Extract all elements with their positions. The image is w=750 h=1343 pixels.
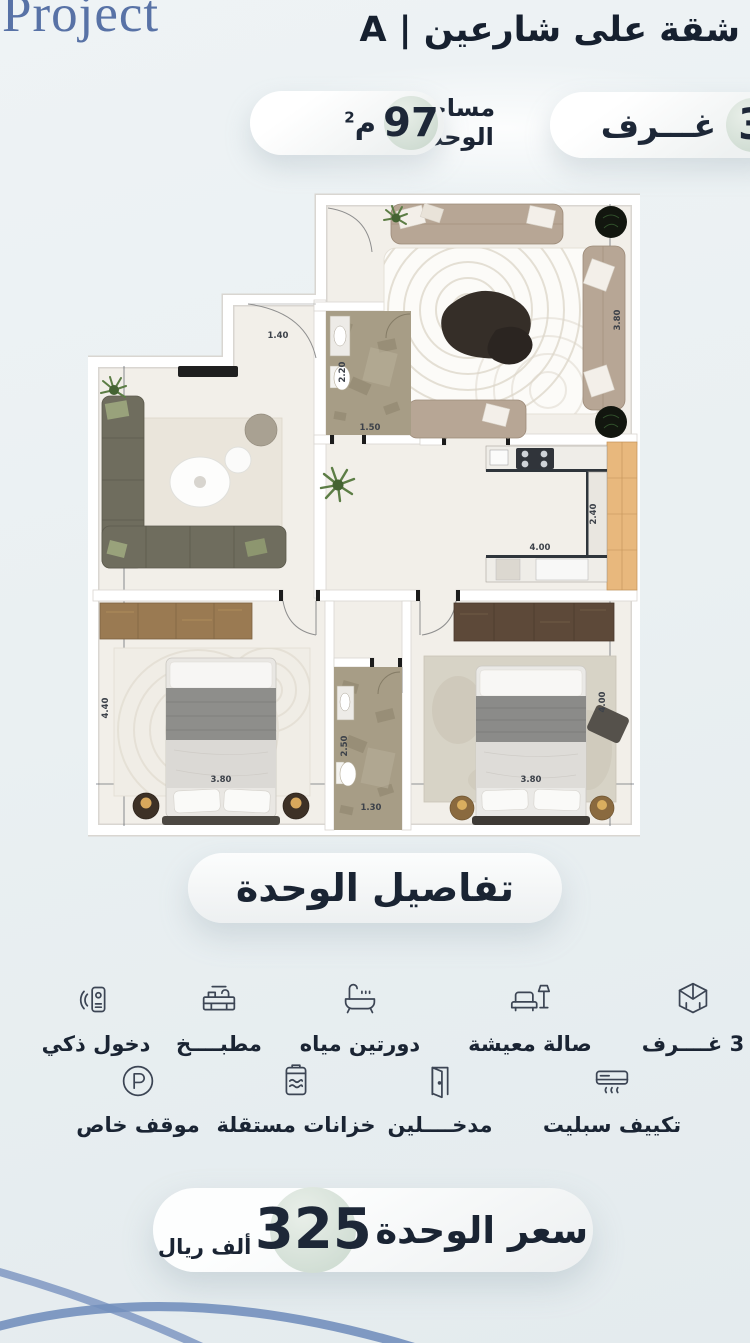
feature-living-hall: صالة معيشة [462, 977, 598, 1056]
svg-text:1.50: 1.50 [360, 423, 381, 433]
price-value: 325 [255, 1202, 372, 1258]
svg-text:4.00: 4.00 [530, 543, 551, 553]
svg-text:3.80: 3.80 [521, 775, 542, 785]
tv-unit [178, 366, 238, 377]
ac-split-icon [589, 1058, 635, 1104]
kitchen-icon [196, 977, 242, 1023]
rooms-count: 3 [738, 104, 750, 147]
price-value-wrap: 325 [267, 1188, 359, 1272]
feature-ac: تكييف سبليت [544, 1058, 680, 1137]
sofa-icon [507, 977, 553, 1023]
smart-lock-icon [73, 977, 119, 1023]
svg-text:2.50: 2.50 [340, 735, 350, 756]
svg-text:2.40: 2.40 [589, 503, 599, 524]
kitchen-sink [490, 450, 508, 465]
svg-text:3.80: 3.80 [613, 309, 623, 330]
area-badge: 97 م2 [250, 91, 444, 155]
flyer-page: Project شقة على شارعين | A 3 غـــرف مساح… [0, 0, 750, 1343]
feature-entrances: مدخــــلين [372, 1058, 508, 1137]
floor-plan: 3.80 2.20 1.50 [88, 190, 640, 840]
rooms-label: غـــرف [601, 106, 716, 145]
svg-text:1.40: 1.40 [268, 331, 289, 341]
bathtub-icon [337, 977, 383, 1023]
feature-tanks: خزانات مستقلة [228, 1058, 364, 1137]
feature-rooms: 3 غــــرف [625, 977, 750, 1056]
bath2-toilet [340, 762, 356, 786]
brand-logo: Project [2, 0, 159, 44]
cube-3d-icon [670, 977, 716, 1023]
door-icon [417, 1058, 463, 1104]
rooms-badge: 3 غـــرف [550, 92, 750, 158]
area-value: 97 [383, 103, 439, 143]
price-badge: سعر الوحدة 325 ألف ريال [153, 1188, 593, 1272]
bedroom-right: 4.00 3.80 [424, 603, 630, 825]
page-title: شقة على شارعين | A [360, 10, 740, 50]
feature-kitchen: مطبــــخ [151, 977, 287, 1056]
svg-text:2.20: 2.20 [338, 361, 348, 382]
rooms-badge-circle: 3 [726, 98, 750, 152]
svg-text:1.30: 1.30 [361, 803, 382, 813]
feature-parking: موقف خاص [70, 1058, 206, 1137]
bathroom-1: 2.20 1.50 [326, 311, 411, 435]
details-heading: تفاصيل الوحدة [188, 853, 562, 923]
bathroom-2: 2.50 1.30 [334, 667, 402, 830]
bed-left [162, 658, 280, 825]
svg-text:4.40: 4.40 [101, 697, 111, 718]
feature-smart-entry: دخول ذكي [28, 977, 164, 1056]
area-badge-circle: 97 [384, 96, 438, 150]
svg-text:4.00: 4.00 [598, 691, 608, 712]
feature-bathrooms: دورتين مياه [292, 977, 428, 1056]
stove [516, 448, 554, 469]
area-unit: م2 [344, 106, 376, 140]
bed-right [472, 666, 590, 825]
svg-text:3.80: 3.80 [211, 775, 232, 785]
parking-icon [115, 1058, 161, 1104]
water-tank-icon [273, 1058, 319, 1104]
price-label: سعر الوحدة [375, 1209, 588, 1252]
price-unit: ألف ريال [158, 1235, 252, 1259]
